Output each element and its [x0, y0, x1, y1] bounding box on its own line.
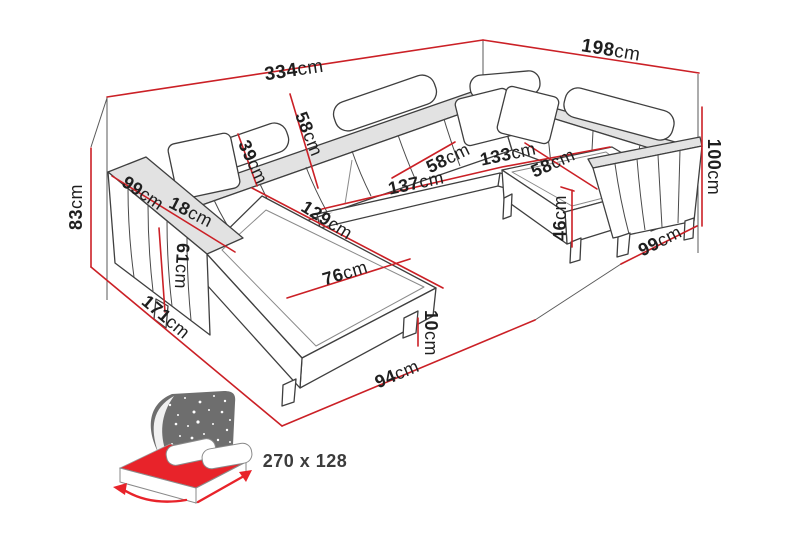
dim-value: 334	[263, 59, 299, 85]
sofa-bed-icon: 270 x 128	[113, 391, 347, 503]
dim-value: 61	[172, 242, 193, 264]
dim-unit: cm	[509, 138, 538, 163]
dim-label-front-width: 94cm	[372, 356, 422, 392]
diagram-canvas: 334cm 198cm 100cm 99cm 46cm 83cm 171cm 9…	[0, 0, 800, 533]
dim-label-seat-height: 46cm	[550, 195, 570, 241]
dim-label-armrest-height: 61cm	[171, 242, 193, 289]
dim-label-total-depth: 198cm	[580, 35, 642, 66]
dim-value: 198	[580, 35, 616, 61]
dim-unit: cm	[296, 55, 325, 80]
chaise-left-leg	[282, 379, 296, 406]
dim-label-leg-height: 10cm	[421, 310, 441, 356]
bed-width-arrowhead	[113, 483, 127, 495]
sleeping-area-size-label: 270 x 128	[263, 451, 348, 471]
dim-label-backrest-depth: 58cm	[291, 109, 327, 159]
dim-unit: cm	[171, 263, 192, 289]
dim-value: 46	[550, 220, 570, 241]
dim-value: 10	[421, 310, 441, 331]
dim-unit: cm	[613, 40, 642, 65]
frame-floor-right-edge	[535, 264, 621, 320]
dim-unit: cm	[550, 195, 570, 220]
right-seat-leg-3	[503, 194, 512, 219]
dim-unit: cm	[66, 184, 86, 209]
dim-value: 100	[704, 139, 724, 171]
dim-label-back-height: 100cm	[704, 139, 724, 196]
dim-value: 83	[66, 209, 86, 230]
dim-label-total-width: 334cm	[263, 55, 325, 85]
sofa-dimension-diagram: 334cm 198cm 100cm 99cm 46cm 83cm 171cm 9…	[0, 0, 800, 533]
dim-unit: cm	[421, 331, 441, 356]
dim-unit: cm	[704, 170, 724, 195]
right-armrest-leg-1	[617, 233, 630, 257]
frame-left-extension	[91, 98, 107, 147]
dim-label-left-height: 83cm	[66, 184, 86, 230]
